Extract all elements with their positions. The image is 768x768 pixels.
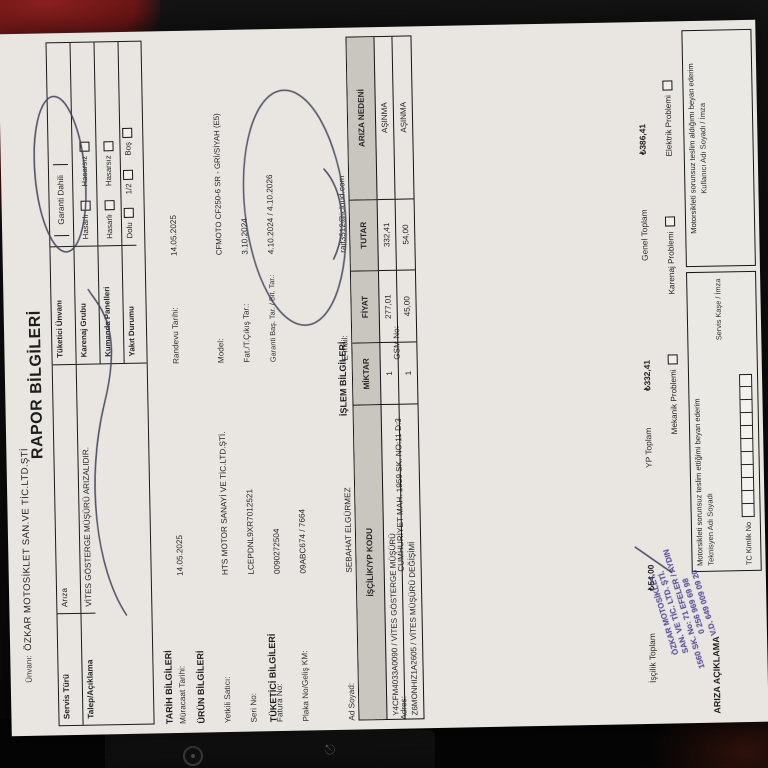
- electrical-problem-label: Elektrik Problemi: [663, 95, 673, 157]
- checkbox-unchecked: [104, 200, 114, 210]
- consumer-title-label: Tüketici Ünvanı: [50, 245, 75, 363]
- invoice-date-label: Fat./T.Çıkış Tar.:: [240, 257, 251, 363]
- plate-km-label: Plaka No/Geliş KM:: [298, 575, 310, 721]
- checkbox-unchecked: [662, 80, 672, 90]
- invoice-no-value: 0090272504: [271, 528, 281, 574]
- col-header-total: TUTAR: [349, 199, 378, 271]
- totals-row: İşçilik Toplam ₺54,00 YP Toplam ₺332,41 …: [635, 23, 662, 723]
- technician-signature-box: Motorsikleti sorunsuz teslim ettiğimi be…: [686, 271, 762, 572]
- paper-sheet: Ünvanı: ÖZKAR MOTOSİKLET SAN.VE TİC.LTD.…: [0, 20, 768, 736]
- service-report-document: Ünvanı: ÖZKAR MOTOSİKLET SAN.VE TİC.LTD.…: [0, 21, 768, 735]
- control-panels-label: Kumanda Panelleri: [98, 245, 123, 363]
- product-row-3: Fatura No: 0090272504 Garanti Baş. Tar. …: [262, 38, 288, 722]
- dealer-value: HTS MOTOR SANAYİ VE TİC.LTD.ŞTİ.: [217, 431, 229, 575]
- row1-price: 277,01: [378, 270, 397, 342]
- labor-total-label: İşçilik Toplam: [646, 633, 657, 683]
- product-row-1: Yetkili Satıcı: HTS MOTOR SANAYİ VE TİC.…: [210, 39, 236, 723]
- checkbox-unchecked: [123, 208, 133, 218]
- checkbox-unchecked: [80, 200, 90, 210]
- product-row-2: Seri No: LCEPDNL9XR7012521 Fat./T.Çıkış …: [236, 39, 262, 723]
- customer-signature-box: Motorsikleti sorunsuz teslim aldığımı be…: [681, 29, 756, 267]
- product-section-title: ÜRÜN BİLGİLERİ: [195, 650, 206, 723]
- option-label: Hasarlı: [104, 214, 113, 239]
- condition-column: Tüketici Ünvanı Garanti Dahili Karenaj G…: [46, 42, 146, 364]
- warranty-dates-label: Garanti Baş. Tar. / Bit. Tar.:: [266, 256, 277, 362]
- row1-qty: 1: [380, 342, 399, 404]
- date-section-title: TARİH BİLGİLERİ: [163, 650, 174, 724]
- plate-km-value: 09ABC674 / 7664: [297, 509, 307, 574]
- model-value: CFMOTO CF250-6 SR - GRİ/SİYAH (E5): [211, 113, 223, 255]
- camera-lens-icon: [183, 746, 203, 766]
- option-label: Dolu: [124, 222, 133, 238]
- request-label: Talep/Açıklama: [81, 613, 97, 725]
- mechanical-problem-label: Mekanik Problemi: [668, 369, 678, 434]
- row2-price: 45,00: [396, 270, 415, 342]
- date-row: Müracaat Tarihi: 14.05.2025 Randevu Tari…: [165, 40, 191, 724]
- serial-value: LCEPDNL9XR7012521: [245, 489, 256, 575]
- fairing-problem-label: Karenaj Problemi: [665, 232, 675, 295]
- mechanical-problem-option: Mekanik Problemi: [667, 354, 679, 434]
- checkbox-unchecked: [667, 354, 677, 364]
- application-date-value: 14.05.2025: [174, 535, 184, 576]
- application-date-label: Müracaat Tarihi:: [175, 578, 187, 724]
- checkbox-unchecked: [78, 142, 88, 152]
- checkbox-unchecked: [122, 128, 132, 138]
- grand-total-label: Genel Toplam: [638, 209, 649, 261]
- serial-label: Seri No:: [246, 576, 258, 722]
- option-label: Boş: [122, 142, 131, 156]
- tc-id-digit-cells: [738, 374, 754, 517]
- device-glyph: ⎋: [325, 742, 337, 758]
- checkbox-unchecked: [102, 141, 112, 151]
- row1-fault-reason: AŞINMA: [374, 37, 395, 199]
- row2-fault-reason: AŞINMA: [392, 36, 413, 198]
- fairing-problem-option: Karenaj Problemi: [664, 217, 675, 295]
- fuel-level-label: Yakıt Durumu: [122, 244, 138, 362]
- warranty-dates-value: 4.10.2024 / 4.10.2026: [265, 174, 276, 254]
- service-type-label: Servis Türü: [57, 613, 82, 725]
- electrical-problem-option: Elektrik Problemi: [662, 80, 673, 157]
- unvani-label: Ünvanı:: [24, 655, 34, 683]
- row2-total: 54,00: [395, 198, 414, 270]
- checkbox-unchecked: [122, 169, 132, 179]
- checkbox-unchecked: [664, 217, 674, 227]
- request-column: Servis Türü Arıza Talep/Açıklama VİTES G…: [52, 362, 153, 725]
- garanti-dahili-cell: Garanti Dahili: [52, 164, 68, 236]
- col-header-price: FİYAT: [350, 270, 379, 342]
- background-device: ⎋: [105, 730, 435, 768]
- option-label: Hasarsız: [103, 155, 113, 186]
- service-type-value: Arıza: [52, 364, 80, 613]
- appointment-date-value: 14.05.2025: [168, 215, 178, 256]
- row2-qty: 1: [398, 341, 417, 403]
- parts-total-label: YP Toplam: [643, 428, 654, 468]
- grand-total-value: ₺386,41: [637, 124, 648, 155]
- dealer-label: Yetkili Satıcı:: [220, 577, 232, 723]
- service-stamp-label: Servis Kaşe / İmza: [713, 278, 723, 340]
- appointment-date-label: Randevu Tarihi:: [169, 258, 180, 364]
- parts-total-value: ₺332,41: [641, 360, 652, 391]
- tc-id-label: TC Kimlik No: [743, 522, 753, 565]
- operations-table: İŞÇİLİK/YP KODU MİKTAR FİYAT TUTAR ARIZA…: [345, 35, 424, 720]
- tc-id-row: TC Kimlik No: [738, 374, 755, 565]
- col-header-qty: MİKTAR: [352, 342, 381, 404]
- row1-total: 332,41: [377, 198, 396, 270]
- request-and-condition-box: Servis Türü Arıza Talep/Açıklama VİTES G…: [45, 41, 154, 727]
- consumer-section-title: TÜKETİCİ BİLGİLERİ: [266, 634, 278, 723]
- option-label: 1/2: [123, 183, 132, 194]
- model-label: Model:: [214, 257, 225, 363]
- invoice-date-value: 3.10.2024: [239, 218, 249, 255]
- product-row-4: Plaka No/Geliş KM: 09ABC674 / 7664: [288, 38, 314, 722]
- option-label: Hasarsız: [79, 156, 89, 187]
- photo-of-service-report: ⎋ Ünvanı: ÖZKAR MOTOSİKLET SAN.VE TİC.LT…: [0, 0, 768, 768]
- option-label: Hasarlı: [80, 214, 89, 239]
- fairing-group-label: Karenaj Grubu: [74, 245, 99, 363]
- col-header-fault-reason: ARIZA NEDENİ: [346, 37, 377, 199]
